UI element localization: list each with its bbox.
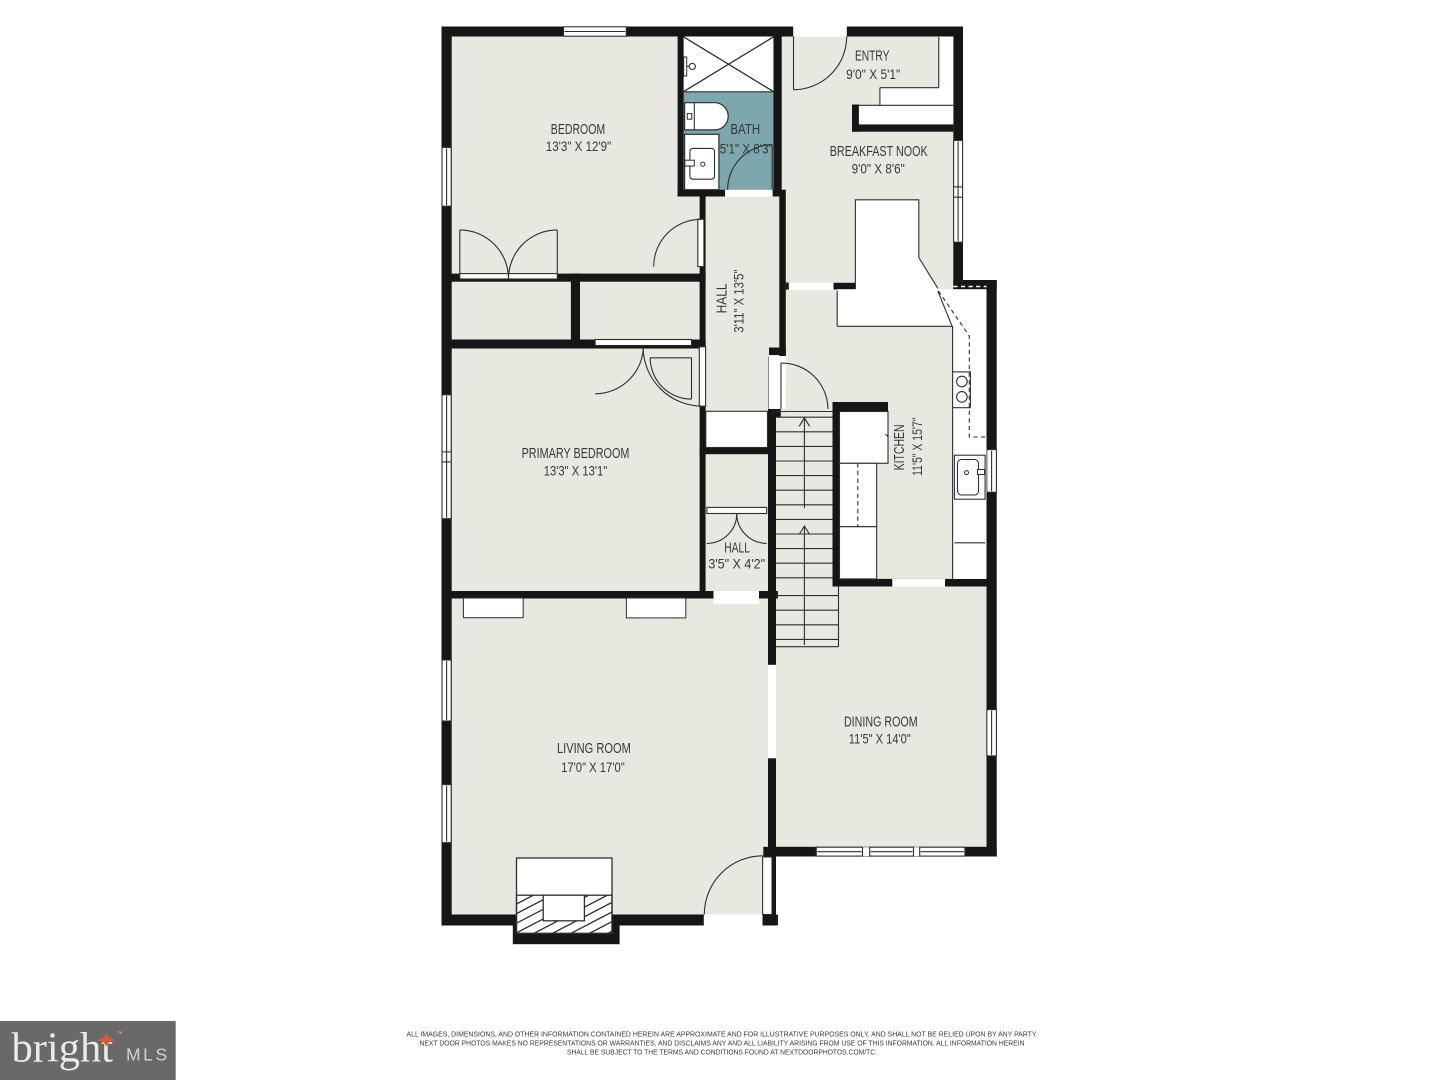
svg-text:LIVING ROOM: LIVING ROOM bbox=[557, 741, 631, 757]
svg-text:HALL: HALL bbox=[715, 283, 731, 313]
svg-text:SHALL BE SUBJECT TO THE TERMS: SHALL BE SUBJECT TO THE TERMS AND CONDIT… bbox=[567, 1050, 877, 1057]
svg-text:MLS: MLS bbox=[126, 1044, 170, 1064]
svg-text:bright: bright bbox=[12, 1025, 114, 1072]
svg-text:BATH: BATH bbox=[730, 122, 760, 138]
svg-text:13'3" X 12'9": 13'3" X 12'9" bbox=[546, 139, 612, 154]
svg-text:17'0" X 17'0": 17'0" X 17'0" bbox=[561, 760, 625, 775]
svg-text:11'5" X 15'7": 11'5" X 15'7" bbox=[910, 417, 925, 475]
svg-text:3'5" X 4'2": 3'5" X 4'2" bbox=[708, 556, 765, 571]
svg-text:9'0" X 5'1": 9'0" X 5'1" bbox=[846, 67, 900, 82]
svg-text:ENTRY: ENTRY bbox=[855, 49, 890, 65]
svg-text:PRIMARY BEDROOM: PRIMARY BEDROOM bbox=[522, 446, 630, 462]
svg-text:BREAKFAST NOOK: BREAKFAST NOOK bbox=[830, 144, 928, 160]
svg-text:13'3" X 13'1": 13'3" X 13'1" bbox=[544, 463, 608, 478]
svg-text:BEDROOM: BEDROOM bbox=[551, 122, 605, 138]
svg-text:5'1" X 8'3": 5'1" X 8'3" bbox=[720, 141, 773, 156]
svg-text:NEXT DOOR PHOTOS MAKES NO REPR: NEXT DOOR PHOTOS MAKES NO REPRESENTATION… bbox=[420, 1041, 1025, 1048]
svg-text:HALL: HALL bbox=[724, 540, 750, 556]
svg-text:DINING ROOM: DINING ROOM bbox=[844, 714, 918, 730]
svg-text:ALL IMAGES, DIMENSIONS, AND OT: ALL IMAGES, DIMENSIONS, AND OTHER INFORM… bbox=[407, 1032, 1038, 1039]
svg-text:™: ™ bbox=[118, 1031, 123, 1037]
svg-text:11'5" X 14'0": 11'5" X 14'0" bbox=[849, 731, 911, 746]
svg-text:KITCHEN: KITCHEN bbox=[892, 424, 908, 470]
svg-text:3'11" X 13'5": 3'11" X 13'5" bbox=[731, 269, 746, 332]
svg-text:9'0" X 8'6": 9'0" X 8'6" bbox=[852, 162, 905, 177]
